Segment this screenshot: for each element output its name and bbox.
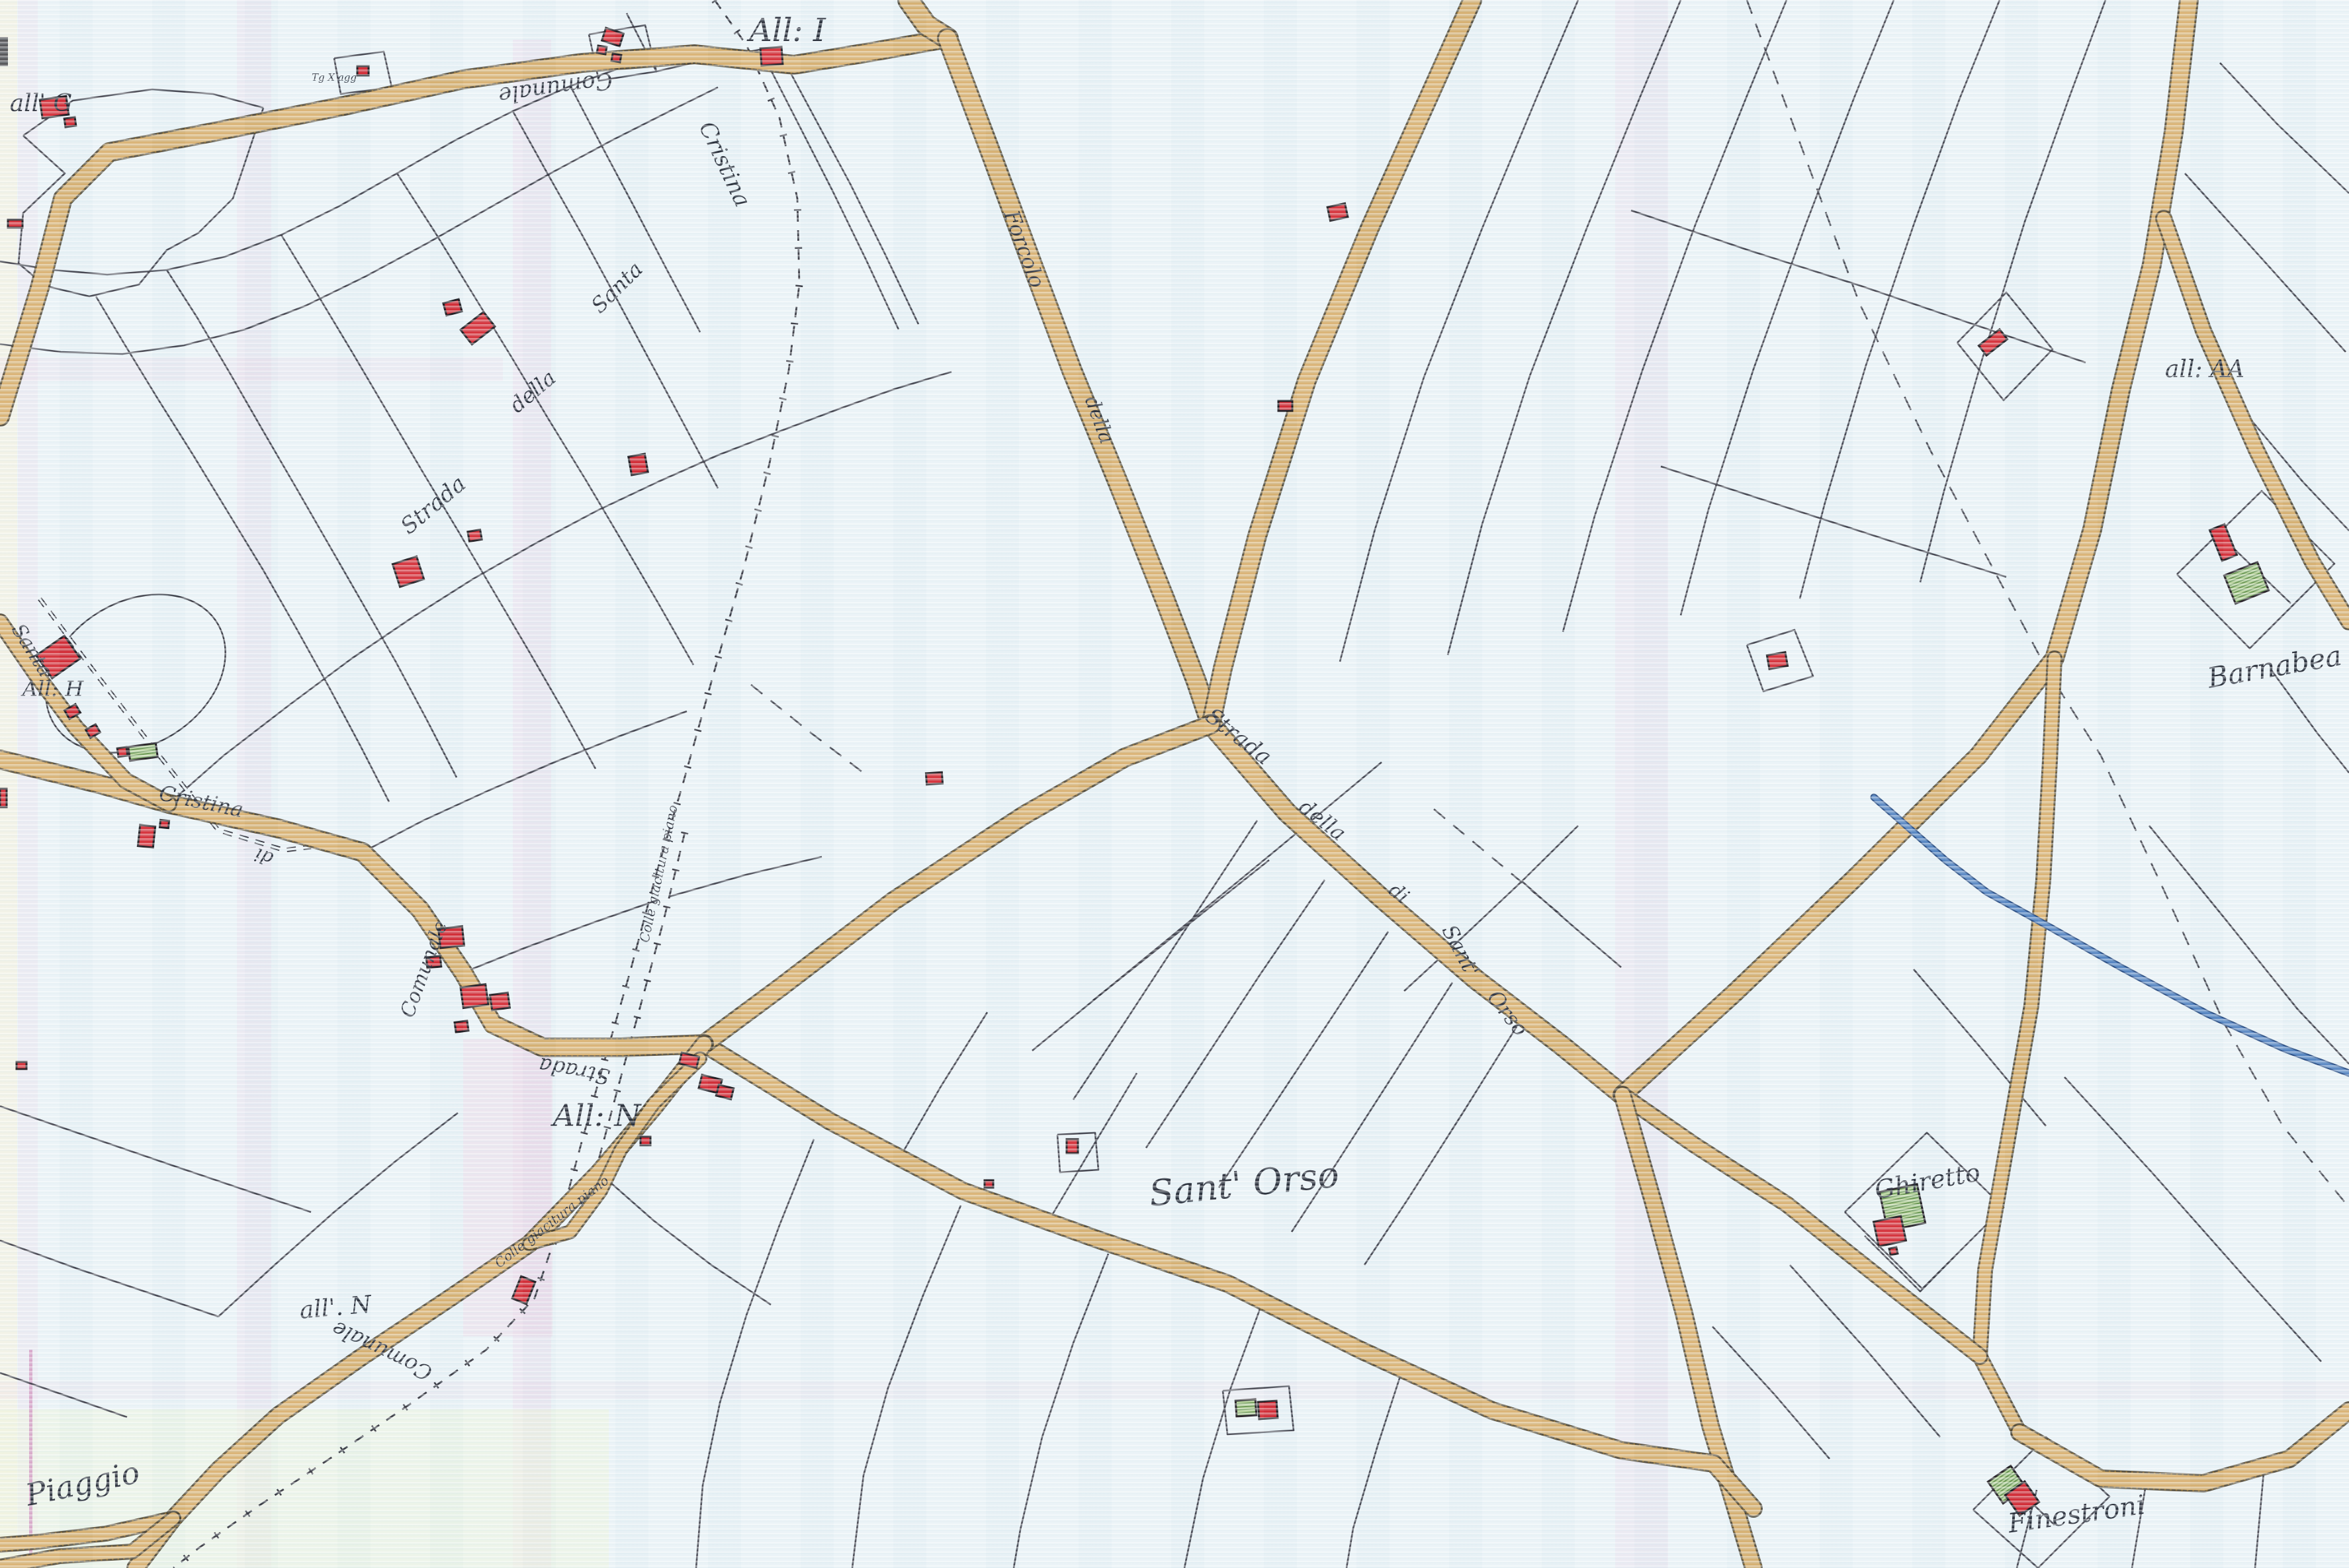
stream-watercourse [1874, 797, 2349, 1073]
building-red [641, 1137, 650, 1145]
scan-tint-band [513, 40, 551, 1568]
road-edge-dots [0, 760, 704, 1047]
scan-tint-band [463, 1039, 553, 1336]
building-red [8, 220, 22, 228]
building-red [490, 992, 510, 1010]
parcel-line [1049, 1073, 1137, 1221]
parcel-line [696, 1139, 814, 1568]
building-red [1067, 1139, 1078, 1153]
place-name-label: All: I [746, 12, 826, 49]
parcel-line [2064, 1077, 2321, 1362]
parcel-line [2271, 670, 2349, 773]
scan-tint-band [0, 0, 17, 1568]
building-red [1874, 1216, 1906, 1246]
building-red [1767, 652, 1787, 670]
building-red [1258, 1401, 1278, 1419]
stream-edge [1874, 797, 2349, 1073]
road-surface [2019, 1411, 2349, 1483]
building-red [985, 1180, 993, 1188]
scanned-cadastral-map-sheet: All: Iall' Gall: AABarnabeaSant' OrsoAll… [0, 0, 2349, 1568]
scan-tint-band [237, 0, 271, 1568]
building-red [602, 28, 624, 46]
parcel-line [1093, 860, 1269, 1000]
parcel-line [1661, 466, 2006, 577]
building-red [455, 1021, 468, 1032]
parcel-line [1790, 1265, 1940, 1437]
building-garden-green [2224, 562, 2268, 604]
scan-tint-band [0, 357, 503, 381]
road-name-label: Strada [396, 470, 471, 540]
scan-tint-band [0, 37, 8, 66]
parcel-line [784, 61, 918, 324]
annotation-label: Tg X agg [312, 71, 357, 83]
place-name-label: all' G [10, 90, 73, 117]
building-garden-green [1235, 1399, 1257, 1416]
building-red [117, 747, 128, 757]
parcel-line [1032, 762, 1382, 1051]
parcel-line [769, 66, 899, 329]
parcel-line [897, 1012, 987, 1163]
place-name-label: Sant' Orso [1147, 1153, 1341, 1215]
road-casing [1211, 0, 1472, 724]
building-red [0, 789, 7, 807]
parcel-line [0, 87, 718, 354]
road-edge-dots [1622, 0, 2189, 1095]
building-red [392, 556, 423, 587]
building-red [1978, 329, 2007, 356]
parcel-line [2255, 1465, 2264, 1568]
building-red [611, 54, 621, 62]
parcel-line-dashed [1747, 0, 2349, 1207]
parcel-line [1146, 880, 1325, 1148]
parcel-line [1184, 1302, 1263, 1568]
building-red [629, 454, 648, 475]
parcel-line [1219, 932, 1388, 1188]
place-name-label: All: N [550, 1098, 642, 1133]
parcel-line [1920, 0, 2105, 582]
building-garden-green [128, 743, 158, 761]
building-red [64, 117, 76, 127]
building-red [461, 312, 495, 344]
parcel-line [839, 372, 952, 409]
road-name-label: Cristina [693, 118, 756, 211]
building-red [1889, 1247, 1898, 1255]
parcel-line [1073, 820, 1257, 1100]
parcel-line [1563, 0, 1787, 632]
parcel-line [463, 900, 658, 973]
parcel-line-dashed [751, 685, 867, 775]
parcel-line [1364, 1027, 1517, 1265]
parcel-line [1014, 1254, 1108, 1568]
parcel-line [570, 86, 700, 332]
building-red [138, 825, 155, 848]
place-name-label: all'. N [298, 1291, 373, 1324]
road-surface [0, 760, 704, 1047]
road-surface [704, 724, 1211, 1044]
parcel-line [2220, 63, 2349, 193]
building-red [461, 984, 488, 1008]
building-red [17, 1062, 26, 1069]
building-red [2210, 524, 2237, 560]
road-name-label: Forcolo [998, 206, 1050, 291]
cadastral-map-svg: All: Iall' Gall: AABarnabeaSant' OrsoAll… [0, 0, 2349, 1568]
building-red [443, 299, 462, 316]
parcel-line [2149, 826, 2349, 1064]
building-red [468, 529, 482, 541]
scan-tint-band [1615, 0, 1668, 1568]
building-red [926, 772, 942, 785]
place-name-label: Barnabea [2204, 639, 2344, 695]
building-red [1327, 203, 1348, 220]
road-name-label: Santa [586, 257, 648, 318]
building-red [357, 66, 369, 75]
place-name-label: all: AA [2165, 356, 2244, 383]
road-casing [1622, 0, 2189, 1095]
parcel-line [1340, 0, 1578, 662]
building-red [597, 46, 607, 54]
building-red [716, 1084, 733, 1099]
building-red [1278, 401, 1292, 411]
parcel-line [1631, 210, 2086, 363]
parcel-line [599, 1172, 771, 1305]
building-red [760, 47, 783, 65]
place-name-label: All: H [21, 676, 85, 701]
road-surface [1622, 0, 2189, 1095]
parcel-line [670, 857, 822, 896]
place-name-label: Ghiretto [1873, 1158, 1982, 1205]
road-casing [0, 760, 704, 1047]
building-red [159, 820, 169, 828]
road-surface [948, 38, 1211, 724]
